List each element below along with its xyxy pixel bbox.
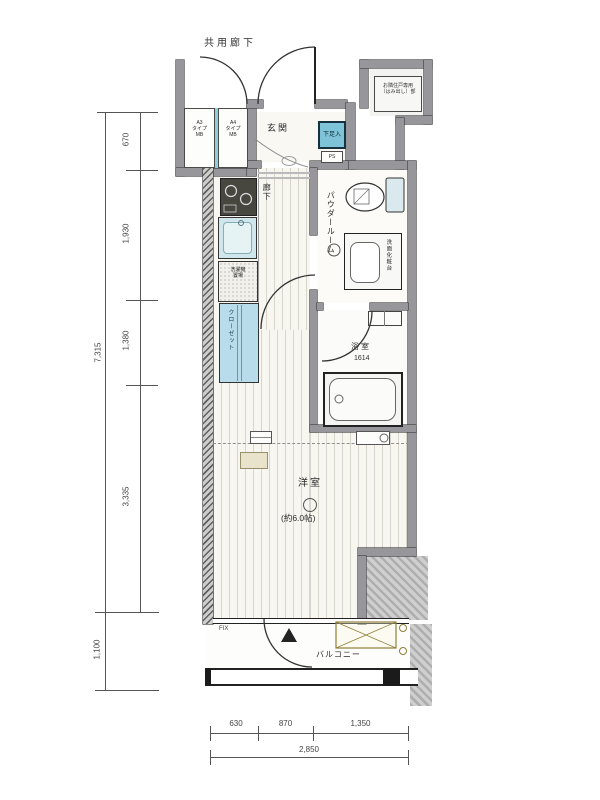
bathtub-inner bbox=[329, 378, 396, 421]
dimension-tick bbox=[95, 612, 159, 613]
vanity-label: 洗面化粧台 bbox=[385, 239, 391, 272]
dimension-line bbox=[210, 757, 408, 758]
fix-window-label: FIX bbox=[219, 626, 228, 633]
vanity-bowl bbox=[350, 242, 380, 283]
counter-shelf bbox=[240, 452, 268, 469]
dimension-line bbox=[210, 733, 408, 734]
balcony-rail-end bbox=[205, 668, 211, 686]
dimension-total-label: 7,315 bbox=[94, 333, 103, 373]
dimension-label: 1,350 bbox=[318, 719, 403, 728]
bedroom-size-label: (約6.0帖) bbox=[281, 514, 315, 524]
wall bbox=[176, 168, 256, 176]
exterior-notch bbox=[366, 556, 428, 620]
wall bbox=[358, 556, 366, 624]
bath-counter-line bbox=[384, 311, 385, 326]
wall bbox=[317, 303, 323, 310]
balcony-label: バルコニー bbox=[316, 650, 361, 659]
dimension-tick bbox=[97, 112, 158, 113]
wall bbox=[346, 161, 416, 169]
wall bbox=[310, 168, 317, 235]
ac-sleeve bbox=[356, 431, 390, 445]
dimension-tick bbox=[126, 170, 158, 171]
wall bbox=[424, 60, 432, 124]
dimension-tick bbox=[126, 385, 158, 386]
entrance-label: 玄関 bbox=[267, 123, 289, 133]
dimension-line bbox=[140, 112, 141, 612]
hallway-label: 廊下 bbox=[262, 183, 271, 201]
meter-box-a4-label: A4タイプMB bbox=[218, 121, 248, 138]
exterior-right-strip bbox=[410, 624, 432, 706]
dimension-tick bbox=[313, 726, 314, 741]
bathroom-size-label: 1614 bbox=[354, 355, 370, 363]
bedroom-label: 洋室 bbox=[298, 478, 322, 490]
air-vent-line bbox=[251, 437, 271, 438]
stove-unit bbox=[220, 178, 257, 216]
dimension-label: 670 bbox=[122, 120, 131, 160]
wall bbox=[370, 303, 408, 310]
wall bbox=[315, 100, 347, 108]
closet-label: クローゼット bbox=[226, 309, 233, 351]
bedroom-flooring-right bbox=[310, 432, 408, 548]
entrance-door-arc bbox=[258, 47, 315, 104]
kitchen-sink-bowl bbox=[223, 222, 252, 254]
wall bbox=[310, 290, 317, 432]
dimension-label: 1,100 bbox=[93, 630, 102, 670]
dimension-tick bbox=[95, 690, 159, 691]
dimension-tick bbox=[408, 750, 409, 765]
closet-door-line bbox=[237, 305, 238, 381]
wall bbox=[176, 60, 184, 176]
pipe-space-label: PS bbox=[321, 151, 343, 163]
dimension-line bbox=[105, 112, 106, 690]
closet bbox=[219, 303, 259, 383]
dimension-tick bbox=[210, 726, 211, 741]
dimension-label: 1,380 bbox=[122, 321, 131, 361]
note-text: お隣住戸専用（はみ出し）部 bbox=[375, 84, 421, 96]
common-corridor-label: 共用廊下 bbox=[204, 38, 256, 50]
bedroom-window bbox=[213, 618, 409, 624]
dimension-tick bbox=[258, 726, 259, 741]
wall bbox=[408, 161, 416, 433]
shoe-cabinet-label: 下足入 bbox=[318, 121, 346, 149]
wall bbox=[358, 548, 416, 556]
dimension-tick bbox=[210, 750, 211, 765]
wall bbox=[346, 103, 355, 169]
washing-machine-label: 洗濯機置場 bbox=[218, 268, 258, 280]
entrance-step-line bbox=[258, 172, 310, 174]
floorplan-canvas: A3タイプMB A4タイプMB お隣住戸専用（はみ出し）部 下足入 PS 洗濯機… bbox=[0, 0, 600, 800]
dimension-label: 1,930 bbox=[122, 214, 131, 254]
wall bbox=[360, 60, 432, 68]
left-exterior-wall bbox=[203, 168, 213, 624]
wall bbox=[408, 430, 416, 556]
balcony-floor bbox=[205, 624, 416, 668]
powder-room-label: パウダールーム bbox=[326, 191, 335, 254]
balcony-partition bbox=[383, 668, 400, 686]
dimension-label: 630 bbox=[214, 719, 258, 728]
dimension-label: 3,335 bbox=[122, 477, 131, 517]
entrance-step-line bbox=[258, 177, 310, 179]
closet-door-line bbox=[241, 305, 242, 381]
dimension-tick bbox=[126, 300, 158, 301]
bedroom-flooring-lower bbox=[310, 548, 358, 620]
dimension-tick bbox=[408, 726, 409, 741]
bathroom-label: 浴室 bbox=[351, 342, 371, 351]
wall bbox=[247, 100, 263, 108]
neighbor-door-arc bbox=[200, 57, 247, 104]
dimension-label: 870 bbox=[263, 719, 308, 728]
bath-counter bbox=[368, 311, 402, 326]
meter-box-a3-label: A3タイプMB bbox=[184, 121, 215, 138]
dimension-total-label: 2,850 bbox=[259, 745, 359, 754]
